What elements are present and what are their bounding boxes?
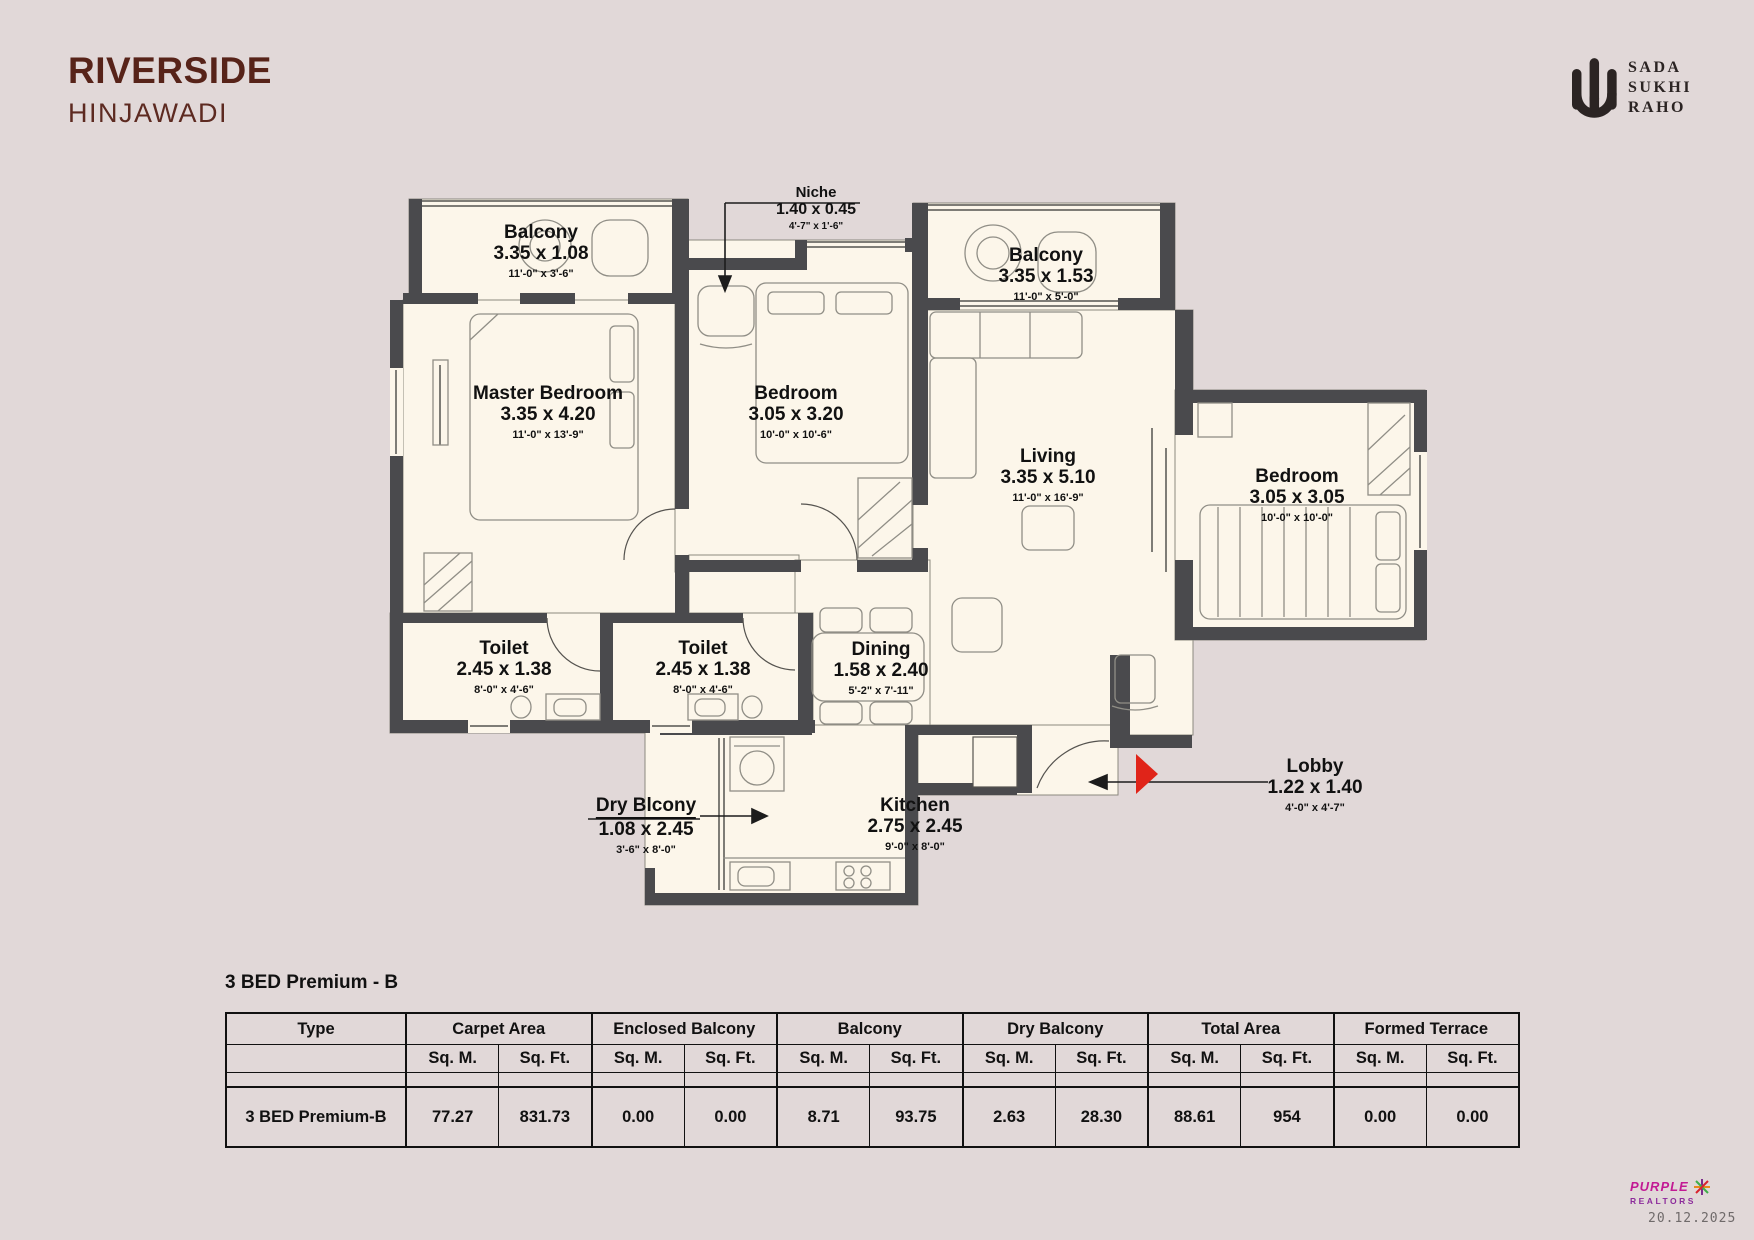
entrance-marker xyxy=(1136,754,1158,794)
cell-value: 2.63 xyxy=(963,1087,1056,1147)
unit-sqm: Sq. M. xyxy=(406,1045,499,1073)
table-data-row: 3 BED Premium-B 77.27 831.73 0.00 0.00 8… xyxy=(226,1087,1519,1147)
unit-sqft: Sq. Ft. xyxy=(1055,1045,1148,1073)
room-label-lobby: Lobby1.22 x 1.404'-0" x 4'-7" xyxy=(1267,756,1362,814)
room-label-dining: Dining1.58 x 2.405'-2" x 7'-11" xyxy=(833,639,928,697)
table-spacer-row xyxy=(226,1073,1519,1088)
col-dry-balcony: Dry Balcony xyxy=(963,1013,1149,1045)
unit-sqm: Sq. M. xyxy=(592,1045,685,1073)
room-label-niche: Niche1.40 x 0.454'-7" x 1'-6" xyxy=(776,184,856,232)
cell-value: 8.71 xyxy=(777,1087,870,1147)
unit-sqft: Sq. Ft. xyxy=(870,1045,963,1073)
room-label-balcony-1: Balcony3.35 x 1.0811'-0" x 3'-6" xyxy=(493,222,588,280)
unit-sqm: Sq. M. xyxy=(777,1045,870,1073)
cell-value: 0.00 xyxy=(1334,1087,1427,1147)
room-label-bedroom-2: Bedroom3.05 x 3.2010'-0" x 10'-6" xyxy=(748,383,843,441)
date-stamp: 20.12.2025 xyxy=(1648,1211,1736,1226)
cell-value: 0.00 xyxy=(1426,1087,1519,1147)
room-label-toilet-2: Toilet2.45 x 1.388'-0" x 4'-6" xyxy=(655,638,750,696)
unit-sqft: Sq. Ft. xyxy=(1426,1045,1519,1073)
unit-sqft: Sq. Ft. xyxy=(1241,1045,1334,1073)
col-formed-terrace: Formed Terrace xyxy=(1334,1013,1520,1045)
col-total-area: Total Area xyxy=(1148,1013,1334,1045)
col-balcony: Balcony xyxy=(777,1013,963,1045)
realtor-logo: PURPLE REALTORS xyxy=(1630,1178,1740,1207)
cell-value: 831.73 xyxy=(499,1087,592,1147)
room-label-toilet-1: Toilet2.45 x 1.388'-0" x 4'-6" xyxy=(456,638,551,696)
unit-sqft: Sq. Ft. xyxy=(684,1045,777,1073)
unit-sqft: Sq. Ft. xyxy=(499,1045,592,1073)
col-enclosed-balcony: Enclosed Balcony xyxy=(592,1013,778,1045)
table-header-row: Type Carpet Area Enclosed Balcony Balcon… xyxy=(226,1013,1519,1045)
cell-value: 93.75 xyxy=(870,1087,963,1147)
cell-type: 3 BED Premium-B xyxy=(226,1087,406,1147)
cell-value: 28.30 xyxy=(1055,1087,1148,1147)
room-label-master-bedroom: Master Bedroom3.35 x 4.2011'-0" x 13'-9" xyxy=(473,383,623,441)
cell-value: 77.27 xyxy=(406,1087,499,1147)
unit-sqm: Sq. M. xyxy=(963,1045,1056,1073)
col-carpet-area: Carpet Area xyxy=(406,1013,592,1045)
room-label-bedroom-3: Bedroom3.05 x 3.0510'-0" x 10'-0" xyxy=(1249,466,1344,524)
room-label-dry-balcony: Dry Blcony1.08 x 2.453'-6" x 8'-0" xyxy=(596,795,696,856)
realtor-brand-line2: REALTORS xyxy=(1630,1196,1740,1207)
table-title: 3 BED Premium - B xyxy=(225,972,398,994)
realtor-brand-line1: PURPLE xyxy=(1630,1179,1689,1194)
cell-value: 88.61 xyxy=(1148,1087,1241,1147)
cell-value: 0.00 xyxy=(592,1087,685,1147)
col-type: Type xyxy=(226,1013,406,1045)
area-table: Type Carpet Area Enclosed Balcony Balcon… xyxy=(225,1012,1520,1148)
starburst-icon xyxy=(1693,1178,1711,1196)
room-label-living: Living3.35 x 5.1011'-0" x 16'-9" xyxy=(1000,446,1095,504)
unit-sqm: Sq. M. xyxy=(1148,1045,1241,1073)
table-units-row: Sq. M.Sq. Ft. Sq. M.Sq. Ft. Sq. M.Sq. Ft… xyxy=(226,1045,1519,1073)
unit-sqm: Sq. M. xyxy=(1334,1045,1427,1073)
room-label-balcony-3: Balcony3.35 x 1.5311'-0" x 5'-0" xyxy=(998,245,1093,303)
cell-value: 954 xyxy=(1241,1087,1334,1147)
cell-value: 0.00 xyxy=(684,1087,777,1147)
room-label-kitchen: Kitchen2.75 x 2.459'-0" x 8'-0" xyxy=(867,795,962,853)
